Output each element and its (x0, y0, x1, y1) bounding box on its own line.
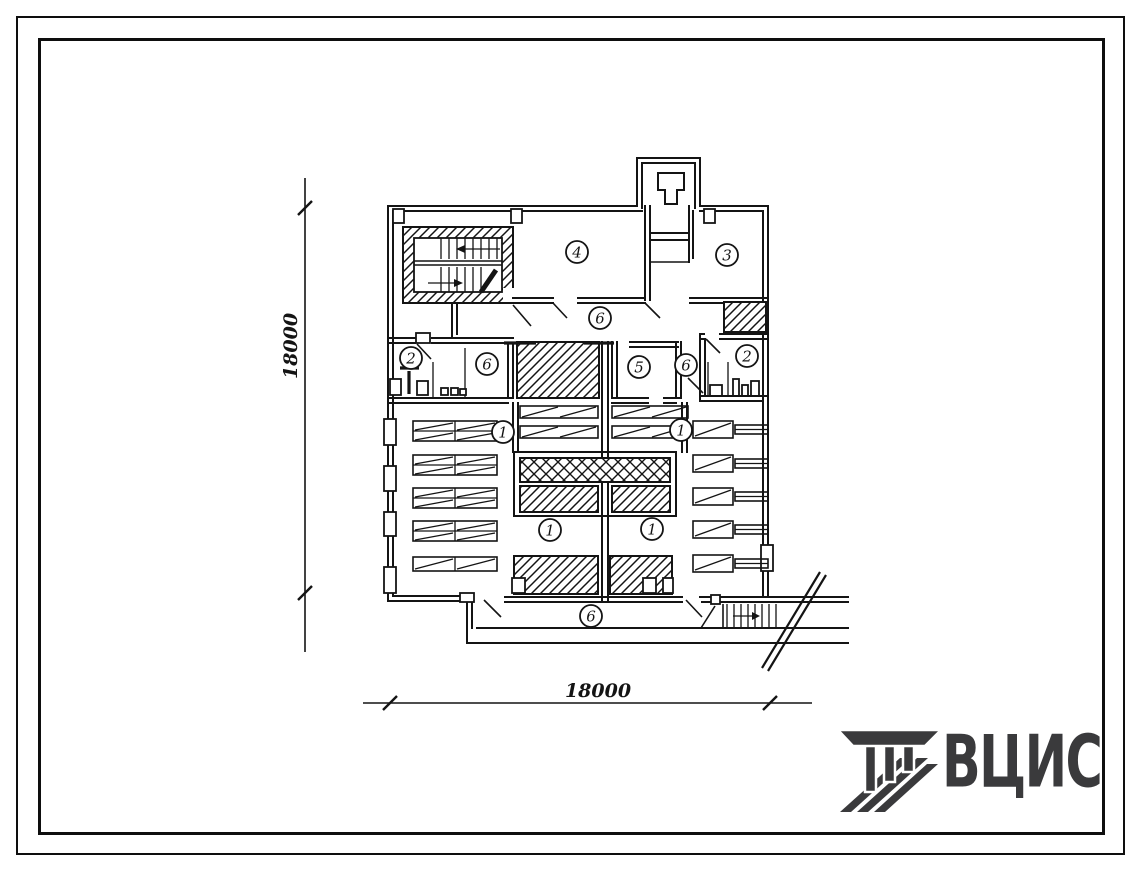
room-label: 6 (675, 354, 697, 376)
central-furniture (484, 403, 702, 617)
svg-text:6: 6 (586, 608, 596, 626)
room-label: 1 (670, 419, 692, 441)
svg-text:2: 2 (405, 350, 416, 368)
right-shelving (693, 421, 768, 572)
stair-core (403, 227, 531, 338)
dimension-horizontal: 18000 (363, 680, 812, 710)
room-label: 6 (476, 353, 498, 375)
svg-text:6: 6 (482, 356, 492, 374)
left-shelving (413, 421, 497, 571)
svg-text:1: 1 (498, 424, 508, 442)
room-label: 1 (641, 518, 663, 540)
dimension-vertical: 18000 (280, 178, 312, 652)
svg-text:1: 1 (545, 522, 555, 540)
room-label: 6 (580, 605, 602, 627)
room-label: 1 (539, 519, 561, 541)
svg-text:3: 3 (722, 247, 732, 265)
svg-text:1: 1 (647, 521, 657, 539)
svg-text:6: 6 (681, 357, 691, 375)
vertical-dimension-text: 18000 (280, 313, 302, 379)
svg-text:2: 2 (741, 348, 752, 366)
room-label: 5 (628, 356, 650, 378)
room-label: 6 (589, 307, 611, 329)
room-label: 1 (492, 421, 514, 443)
vcis-logo-mark (838, 730, 941, 812)
entrance-vestibule (645, 173, 693, 300)
room-label: 3 (716, 244, 738, 266)
horizontal-dimension-text: 18000 (565, 680, 631, 702)
room-label: 2 (736, 345, 758, 367)
vcis-logo-text: ВЦИС (942, 726, 1101, 798)
room-label: 4 (566, 241, 588, 263)
svg-text:1: 1 (676, 422, 686, 440)
svg-text:4: 4 (571, 244, 582, 262)
room-label: 2 (400, 347, 422, 369)
svg-text:5: 5 (634, 359, 644, 377)
blueprint-page: 2 6 4 3 6 5 6 2 1 1 1 1 6 18000 18000 (0, 0, 1139, 869)
svg-text:6: 6 (595, 310, 605, 328)
